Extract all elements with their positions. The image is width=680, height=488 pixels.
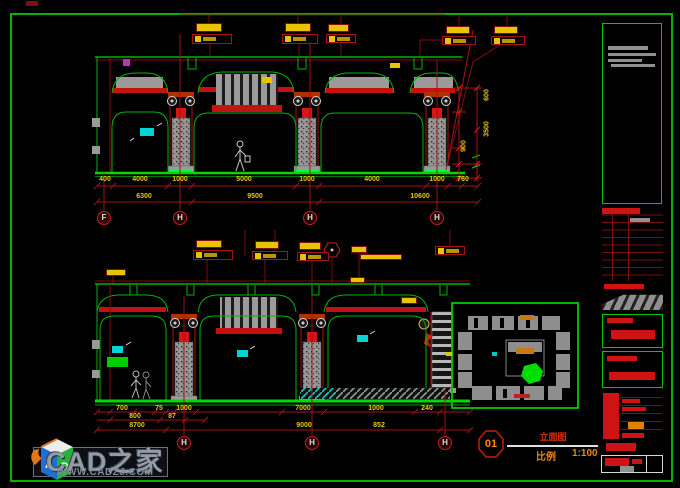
dim-label-vertical: 3500	[484, 121, 491, 137]
stamp-column	[603, 393, 619, 439]
vertical-dimensions-upper	[446, 30, 482, 182]
dim-label: 852	[373, 422, 385, 429]
row-text	[622, 399, 640, 403]
project-name-text	[611, 330, 655, 339]
tag-chip	[285, 36, 291, 42]
grid-bubble: H	[173, 211, 187, 225]
dim-label-vertical: 600	[484, 89, 491, 101]
ground-line-upper	[95, 171, 465, 177]
annotation-callout-box	[192, 34, 232, 44]
grid-bubble-letter: H	[181, 438, 187, 447]
grid-bubble: H	[305, 436, 319, 450]
dim-label: 10600	[410, 193, 429, 200]
annotation-callout-box	[252, 251, 288, 260]
dim-label: 1000	[429, 176, 445, 183]
annotation-tag	[255, 241, 279, 249]
annotations-lower	[107, 331, 375, 367]
dim-label: 9000	[296, 422, 312, 429]
sheet-number-text	[605, 458, 629, 466]
tag-chip	[255, 253, 261, 259]
row-line	[620, 405, 662, 406]
dim-label: 240	[421, 405, 433, 412]
scale-label: 比例	[536, 448, 556, 463]
tag-chip	[300, 254, 306, 260]
project-label	[607, 318, 633, 323]
titleblock-revision-table	[602, 208, 663, 281]
annotation-callout-box	[297, 252, 329, 261]
annotation-callout-box	[193, 250, 233, 260]
revision-entry	[602, 208, 640, 214]
eave-lines-lower	[95, 281, 470, 295]
lower-elevation-drawing	[92, 230, 473, 436]
grid-bubble: H	[438, 436, 452, 450]
notes-text-line	[608, 59, 642, 62]
annotation-tag	[360, 254, 402, 260]
titleblock-firm-logo	[602, 284, 663, 310]
dim-label: 75	[155, 405, 163, 412]
dim-label: 8700	[129, 422, 145, 429]
box-divider	[646, 456, 647, 472]
dim-label: 800	[129, 413, 141, 420]
annotation-tag	[350, 277, 365, 283]
grid-bubble-letter: H	[177, 213, 183, 222]
notes-text-line	[608, 53, 656, 56]
dim-label: 4000	[132, 176, 148, 183]
annotation-callout-box	[326, 34, 356, 43]
ground-lower	[95, 388, 470, 405]
left-wall-upper	[92, 57, 110, 173]
annotation-callout-box	[282, 34, 318, 44]
dim-label: 5000	[236, 176, 252, 183]
annotation-tag	[494, 26, 518, 34]
tag-chip	[494, 38, 500, 44]
annotation-tag	[285, 23, 311, 32]
dim-label: 7000	[295, 405, 311, 412]
titleblock-signature-rows	[602, 391, 663, 441]
annotation-tag	[401, 297, 417, 304]
annotation-callout-box	[435, 246, 465, 255]
sheet-number-text	[632, 459, 642, 464]
dim-label: 400	[99, 176, 111, 183]
annotation-callout-box	[442, 36, 476, 45]
notes-text-line	[608, 46, 648, 50]
dim-label: 700	[116, 405, 128, 412]
dim-label: 9500	[247, 193, 263, 200]
dim-label: 1000	[299, 176, 315, 183]
grid-bubble-letter: F	[102, 213, 107, 222]
dim-label: 1000	[368, 405, 384, 412]
grid-bubble: H	[177, 436, 191, 450]
drawing-linework	[0, 0, 680, 488]
revision-entry	[630, 218, 650, 222]
grid-bubble-letter: H	[434, 213, 440, 222]
titleblock-notes-box	[602, 23, 662, 204]
person-figures	[131, 371, 151, 399]
row-text	[622, 407, 646, 411]
grid-bubble-letter: H	[442, 438, 448, 447]
annotation-tag	[196, 240, 222, 248]
tag-chip	[445, 38, 451, 44]
key-plan-building	[458, 316, 570, 400]
logo-graphic	[602, 291, 663, 310]
eave-canopies-lower	[97, 295, 428, 334]
dim-label-vertical: 900	[461, 140, 468, 152]
notes-text-line	[611, 64, 655, 67]
cyan-tag-upper	[130, 123, 162, 141]
person-figure	[235, 141, 250, 171]
grid-bubble: H	[303, 211, 317, 225]
annotation-tag	[196, 23, 222, 32]
arch-openings-upper	[112, 112, 423, 172]
tag-chip	[196, 252, 202, 258]
detail-number: 01	[485, 438, 497, 450]
row-highlight	[628, 422, 644, 429]
grid-bubble-letter: H	[309, 438, 315, 447]
annotation-tag	[299, 242, 321, 250]
eave-lines-upper	[95, 57, 462, 69]
drawing-label	[607, 356, 637, 361]
table-divider	[612, 208, 613, 281]
row-text	[622, 433, 644, 438]
titleblock-stamp-bar	[606, 443, 636, 451]
cad-drawing-sheet: 400 4000 1000 5000 1000 4000 1000 760 63…	[0, 0, 680, 488]
annotation-tag	[351, 246, 367, 253]
watermark-url: WWW.CADZJ.COM	[57, 467, 154, 478]
eave-canopies-upper	[112, 72, 458, 112]
table-divider	[628, 208, 629, 281]
dim-label: 6300	[136, 193, 152, 200]
grid-bubble-letter: H	[307, 213, 313, 222]
scale-value: 1:100	[572, 448, 598, 459]
grid-bubble: F	[97, 211, 111, 225]
dim-label: 1000	[176, 405, 192, 412]
row-line	[620, 413, 662, 414]
tag-chip	[329, 36, 335, 42]
grid-bubble: H	[430, 211, 444, 225]
annotation-tag	[106, 269, 126, 276]
sheet-number-text	[620, 466, 634, 472]
grid-and-dims-lower	[94, 296, 473, 436]
tag-chip	[438, 248, 444, 254]
drawing-title: 立面图	[539, 430, 566, 443]
firm-name-text	[604, 284, 644, 289]
dim-label: 1000	[172, 176, 188, 183]
titleblock-number-box	[601, 455, 663, 473]
titleblock-project-box	[602, 314, 663, 348]
row-line	[620, 429, 662, 430]
tag-chip	[195, 36, 201, 42]
annotation-callout-box	[491, 36, 525, 45]
dim-label: 4000	[364, 176, 380, 183]
key-plan-highlight	[521, 363, 543, 384]
dim-label: 87	[168, 413, 176, 420]
drawing-name-text	[609, 372, 655, 380]
annotation-tag	[328, 24, 349, 32]
columns-upper	[168, 92, 451, 173]
key-plan	[446, 303, 578, 408]
dim-label: 760	[457, 176, 469, 183]
row-line	[620, 397, 662, 398]
annotation-tag	[446, 26, 470, 34]
titleblock-drawing-box	[602, 351, 663, 388]
